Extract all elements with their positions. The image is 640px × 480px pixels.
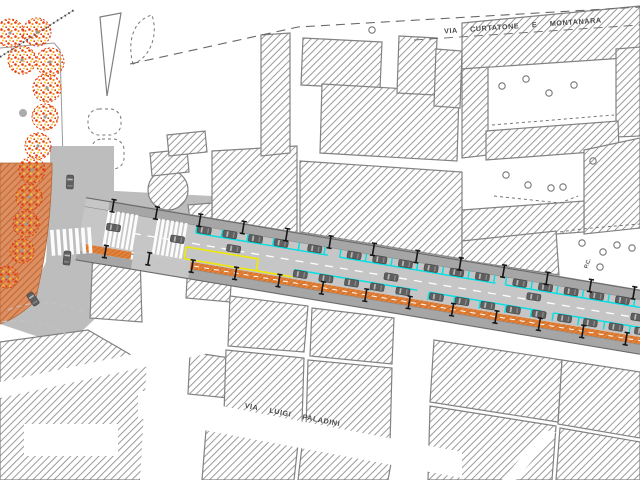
flowerbed-dashed-3 [131, 15, 155, 64]
car [66, 175, 73, 189]
courtyard-circle [503, 172, 509, 178]
tree-trunk [20, 58, 23, 61]
courtyard-circle [597, 264, 603, 270]
flowerbed-dashed-1 [88, 109, 121, 135]
canopy-tree [0, 266, 18, 288]
monument-triangle [100, 13, 121, 96]
tree-trunk [24, 222, 27, 225]
courtyard-circle [571, 82, 577, 88]
tree-trunk [20, 249, 23, 252]
courtyard-circle [548, 185, 554, 191]
tree-trunk [48, 60, 51, 63]
courtyard-circle [560, 184, 566, 190]
courtyard-circle [614, 242, 620, 248]
tree-trunk [30, 168, 33, 171]
plan-frame: VIA CURTATONE E MONTANARA VIA LUIGI PALA… [0, 0, 640, 480]
courtyard-circle [525, 182, 531, 188]
tree-trunk [43, 115, 46, 118]
tree-trunk [35, 30, 38, 33]
canopy-tree [0, 19, 24, 47]
tree-trunk [8, 31, 11, 34]
courtyard-circle [523, 76, 529, 82]
tree-trunk [27, 195, 30, 198]
tree-trunk [5, 275, 8, 278]
park-gray-dot [19, 109, 27, 117]
courtyard-circle [579, 240, 585, 246]
courtyard-circle [369, 27, 375, 33]
pc-marker-label: P.C. [584, 257, 593, 269]
courtyard-circle [546, 90, 552, 96]
car [63, 251, 71, 266]
tree-trunk [36, 144, 39, 147]
courtyard-circle [629, 245, 635, 251]
plan-canvas: VIA CURTATONE E MONTANARA VIA LUIGI PALA… [0, 0, 640, 480]
tree-trunk [45, 86, 48, 89]
courtyard-circle [600, 249, 606, 255]
courtyard-circle [499, 83, 505, 89]
